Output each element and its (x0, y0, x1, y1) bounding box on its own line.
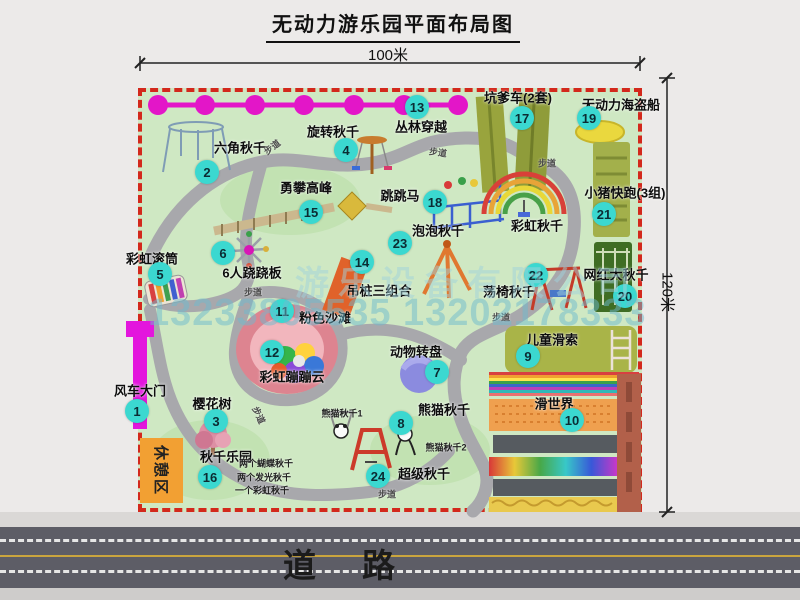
screenshot-root: { "page": { "title": "无动力游乐园平面布局图" }, "d… (0, 0, 800, 600)
dimension-height-label: 120米 (658, 272, 679, 312)
rest-area-label: 休憩区 (151, 445, 172, 496)
dimension-width-label: 100米 (368, 44, 408, 65)
park-map (138, 88, 642, 512)
road-lower-edge (0, 588, 800, 600)
rest-area: 休憩区 (140, 438, 183, 503)
page-title: 无动力游乐园平面布局图 (266, 8, 520, 43)
sidewalk-strip (0, 512, 800, 527)
road-label: 道路 (283, 539, 441, 587)
